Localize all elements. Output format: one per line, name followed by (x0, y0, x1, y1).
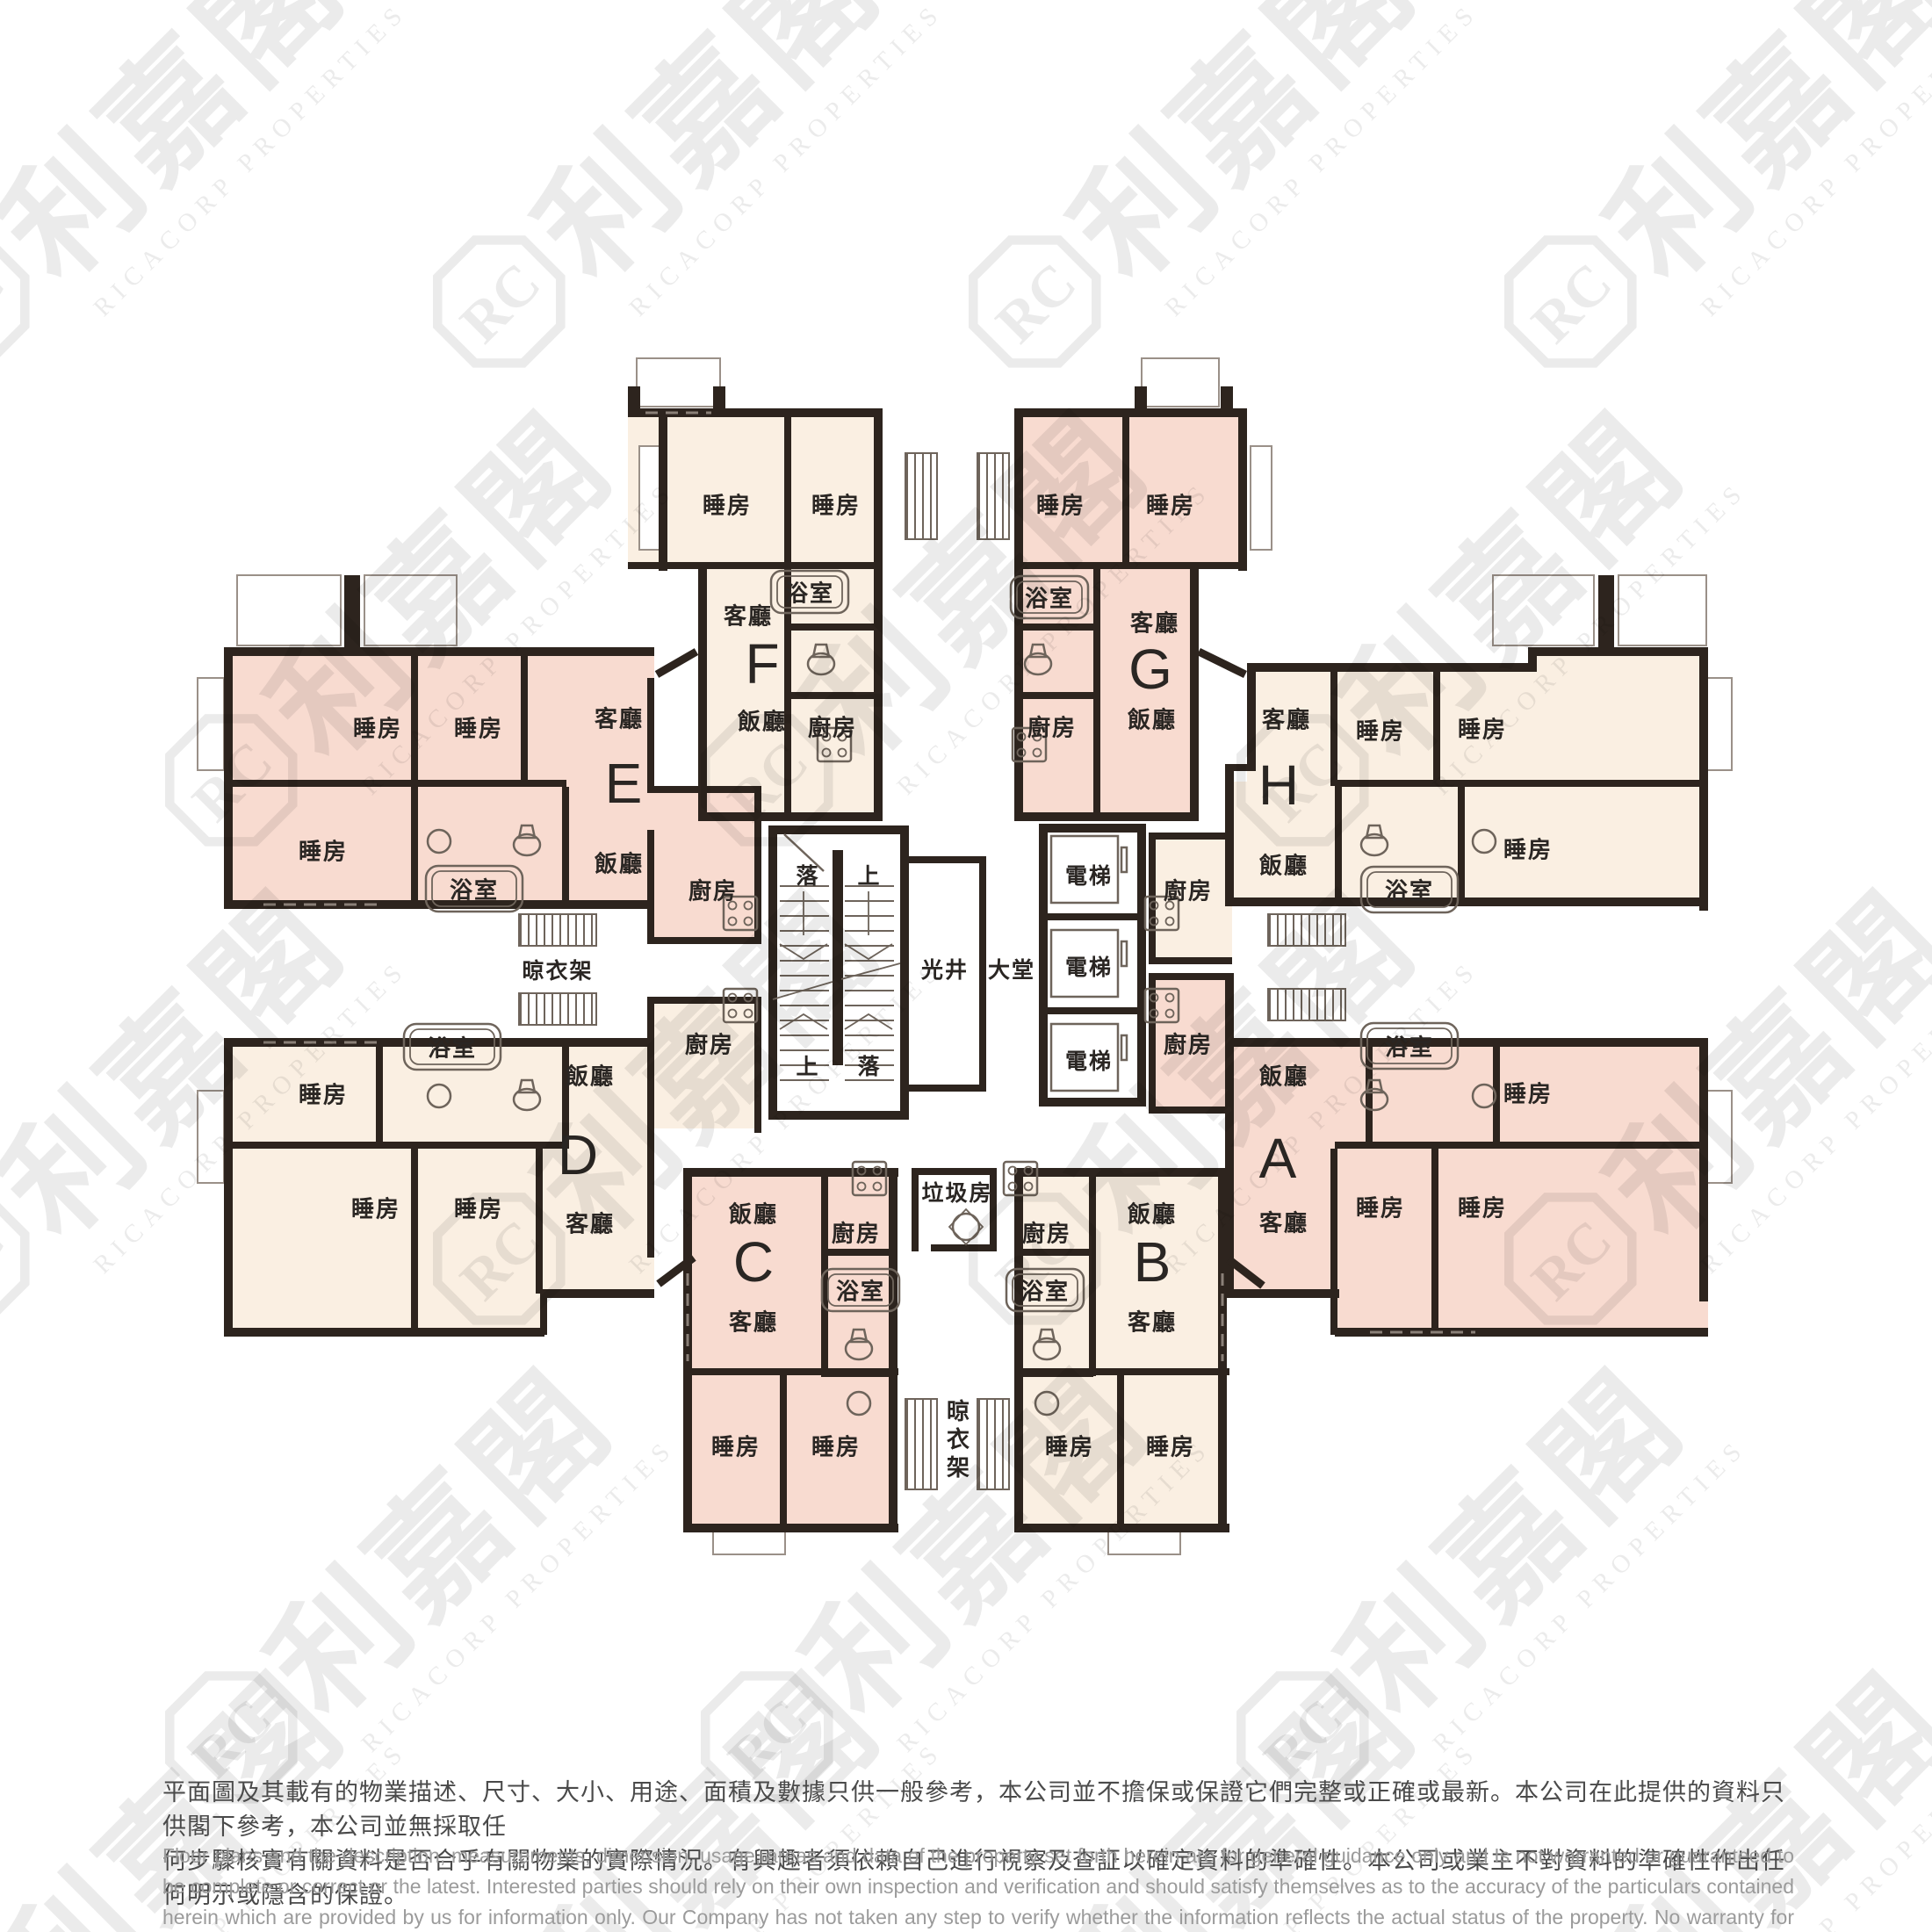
unit-letter-H: H (1258, 753, 1299, 818)
room-label: 浴室 (785, 576, 834, 609)
room-label: 浴室 (1385, 1030, 1434, 1063)
room-label: 客廳 (1262, 703, 1311, 735)
room-label: 浴室 (1385, 874, 1434, 906)
room-label: 睡房 (454, 711, 503, 744)
room-label: 廚房 (688, 874, 738, 906)
core-label: 大堂 (988, 953, 1035, 984)
core-label: 電梯 (1065, 859, 1113, 890)
room-label: 客廳 (1130, 606, 1179, 638)
room-label: 飯廳 (1259, 1059, 1308, 1092)
room-label: 飯廳 (1128, 703, 1177, 735)
unit-letter-C: C (733, 1229, 774, 1294)
room-label: 睡房 (353, 711, 402, 744)
room-label: 睡房 (299, 834, 348, 867)
core-label: 電梯 (1065, 1044, 1113, 1076)
room-label: 睡房 (703, 488, 752, 521)
room-label: 飯廳 (738, 704, 787, 737)
room-label: 睡房 (1458, 712, 1507, 745)
room-label: 睡房 (454, 1192, 503, 1224)
core-label: 光井 (921, 953, 969, 984)
room-label: 睡房 (1503, 833, 1553, 865)
room-label: 睡房 (351, 1192, 400, 1224)
unit-letter-F: F (745, 631, 779, 696)
room-label: 浴室 (1020, 1274, 1070, 1307)
room-label: 睡房 (1036, 488, 1085, 521)
room-label: 飯廳 (729, 1197, 778, 1229)
core-label: 落 (796, 859, 819, 890)
room-label: 飯廳 (1259, 848, 1308, 881)
unit-letter-D: D (558, 1122, 598, 1187)
core-label: 落 (857, 1049, 881, 1081)
room-label: 睡房 (811, 1430, 861, 1462)
core-label: 上 (857, 859, 881, 890)
disclaimer-zh-line1: 平面圖及其載有的物業描述、尺寸、大小、用途、面積及數據只供一般參考，本公司並不擔… (162, 1776, 1794, 1844)
room-label: 廚房 (685, 1027, 734, 1060)
room-label: 客廳 (1128, 1305, 1177, 1337)
room-label: 飯廳 (1128, 1197, 1177, 1229)
room-label: 浴室 (428, 1031, 477, 1063)
room-label: 睡房 (1045, 1430, 1094, 1462)
core-label: 上 (796, 1049, 819, 1081)
room-label: 客廳 (595, 702, 644, 734)
room-label: 廚房 (808, 710, 857, 743)
unit-letter-A: A (1259, 1126, 1297, 1191)
room-label: 飯廳 (566, 1059, 615, 1092)
disclaimer-en-text: Floor plans and the description, measure… (162, 1841, 1794, 1932)
room-label: 客廳 (724, 599, 773, 631)
floorplan-page: F睡房睡房客廳浴室飯廳廚房G睡房睡房客廳浴室飯廳廚房E睡房睡房客廳睡房浴室飯廳廚… (0, 0, 1932, 1932)
room-label: 客廳 (1259, 1206, 1308, 1238)
room-label: 廚房 (832, 1216, 881, 1249)
room-label: 浴室 (836, 1274, 885, 1307)
room-label: 浴室 (450, 873, 499, 905)
core-label: 電梯 (1065, 950, 1113, 982)
core-label: 晾衣架 (522, 954, 593, 985)
unit-letter-G: G (1128, 637, 1172, 702)
room-label: 睡房 (1146, 488, 1195, 521)
room-label: 睡房 (1503, 1077, 1553, 1109)
room-label: 客廳 (729, 1305, 778, 1337)
core-label: 垃圾房 (921, 1176, 992, 1207)
room-label: 廚房 (1022, 1216, 1071, 1249)
room-label: 睡房 (1146, 1430, 1195, 1462)
room-label: 睡房 (811, 488, 861, 521)
room-label: 飯廳 (595, 847, 644, 879)
room-label: 睡房 (1458, 1191, 1507, 1223)
room-label: 廚房 (1164, 874, 1213, 906)
room-label: 客廳 (566, 1207, 615, 1239)
room-label: 睡房 (299, 1078, 348, 1110)
room-label: 睡房 (1356, 1191, 1405, 1223)
unit-letter-E: E (605, 751, 643, 816)
room-label: 睡房 (1356, 714, 1405, 746)
room-label: 浴室 (1025, 581, 1074, 614)
disclaimer-english: Floor plans and the description, measure… (162, 1841, 1794, 1932)
label-layer: F睡房睡房客廳浴室飯廳廚房G睡房睡房客廳浴室飯廳廚房E睡房睡房客廳睡房浴室飯廳廚… (0, 0, 1932, 1932)
room-label: 睡房 (711, 1430, 761, 1462)
core-label: 晾衣架 (941, 1399, 974, 1483)
room-label: 廚房 (1027, 710, 1077, 743)
unit-letter-B: B (1134, 1229, 1171, 1294)
room-label: 廚房 (1164, 1027, 1213, 1060)
